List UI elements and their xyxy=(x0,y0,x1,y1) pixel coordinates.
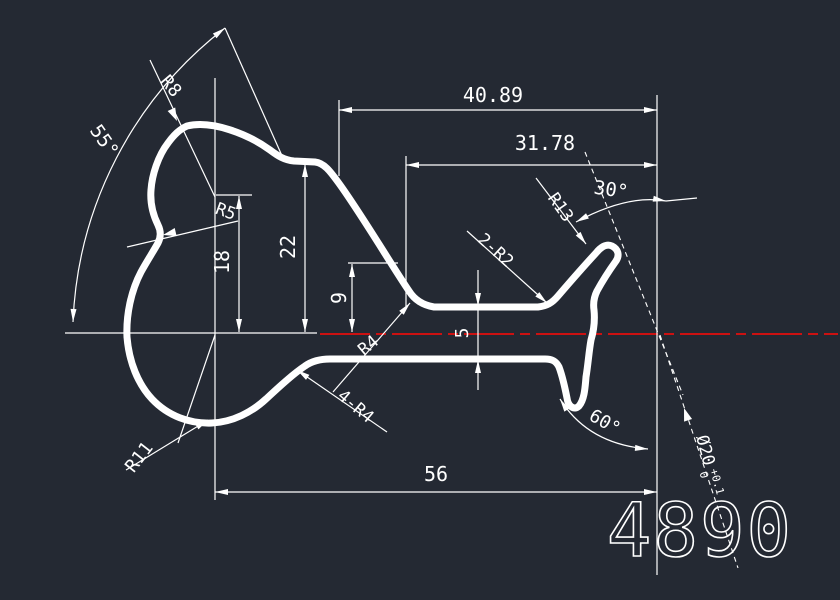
dim-text-9: 9 xyxy=(327,292,351,304)
part-number: 4890 xyxy=(607,488,793,574)
cad-drawing: 40.89 31.78 56 22 18 9 5 55° 30° 60° R8 … xyxy=(0,0,840,600)
dim-text-5: 5 xyxy=(452,328,473,339)
dim-text-40-89: 40.89 xyxy=(463,83,523,107)
dim-text-56: 56 xyxy=(424,462,448,486)
cad-drawing-canvas: 40.89 31.78 56 22 18 9 5 55° 30° 60° R8 … xyxy=(0,0,840,600)
dim-text-31-78: 31.78 xyxy=(515,131,575,155)
dim-text-22: 22 xyxy=(276,235,300,259)
dim-text-18: 18 xyxy=(210,250,234,274)
